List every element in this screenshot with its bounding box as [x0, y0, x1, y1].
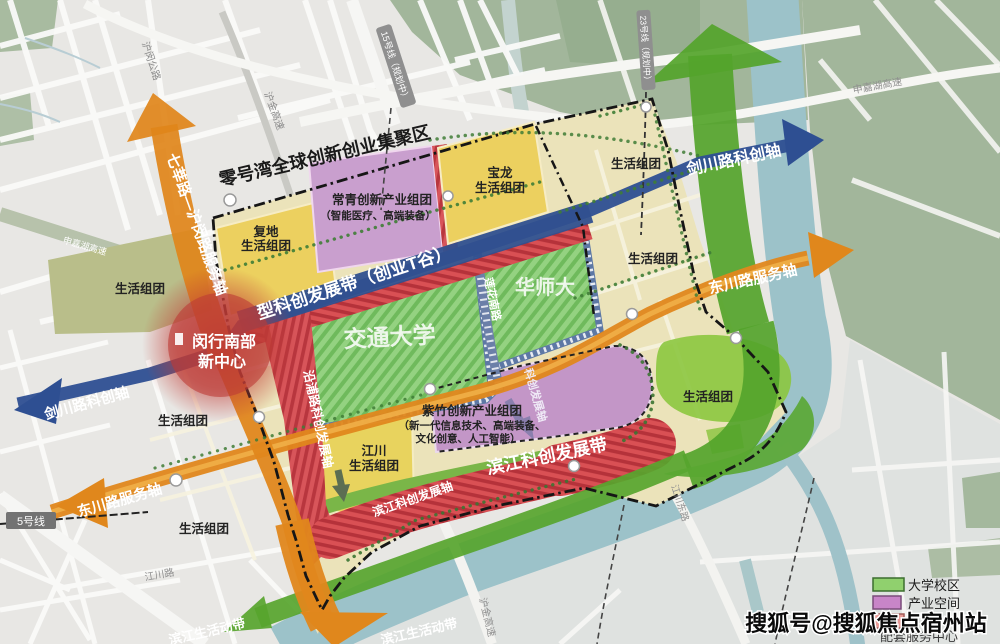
svg-text:江川: 江川	[361, 443, 386, 458]
svg-text:（智能医疗、高端装备）: （智能医疗、高端装备）	[320, 209, 436, 222]
svg-text:生活组团: 生活组团	[158, 413, 208, 428]
svg-text:复地: 复地	[252, 224, 279, 239]
svg-text:大学校区: 大学校区	[908, 578, 960, 593]
svg-text:搜狐号@搜狐焦点宿州站: 搜狐号@搜狐焦点宿州站	[745, 611, 986, 636]
svg-text:闵行南部: 闵行南部	[192, 332, 256, 351]
svg-text:新中心: 新中心	[198, 352, 246, 371]
svg-text:生活组团: 生活组团	[683, 389, 733, 404]
svg-text:生活组团: 生活组团	[349, 458, 399, 473]
svg-text:生活组团: 生活组团	[475, 180, 525, 195]
svg-text:交通大学: 交通大学	[343, 322, 436, 353]
svg-text:5号线: 5号线	[17, 514, 45, 528]
svg-text:宝龙: 宝龙	[487, 165, 513, 180]
svg-text:常青创新产业组团: 常青创新产业组团	[332, 192, 432, 207]
svg-text:生活组团: 生活组团	[611, 156, 661, 171]
svg-text:文化创意、人工智能）: 文化创意、人工智能）	[415, 432, 521, 445]
svg-text:生活组团: 生活组团	[115, 281, 165, 296]
svg-text:生活组团: 生活组团	[628, 251, 678, 266]
svg-text:产业空间: 产业空间	[908, 596, 960, 611]
svg-text:（新一代信息技术、高端装备、: （新一代信息技术、高端装备、	[399, 419, 546, 432]
svg-text:生活组团: 生活组团	[241, 238, 291, 253]
svg-text:紫竹创新产业组团: 紫竹创新产业组团	[422, 403, 522, 418]
svg-text:生活组团: 生活组团	[179, 521, 229, 536]
svg-text:华师大: 华师大	[515, 275, 575, 299]
